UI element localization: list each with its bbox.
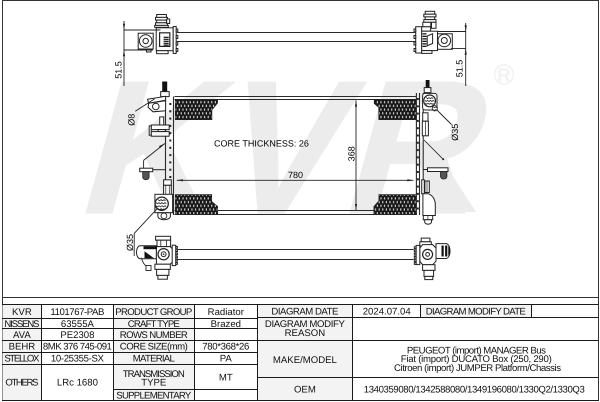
svg-text:PE2308: PE2308: [60, 330, 94, 341]
svg-text:REASON: REASON: [285, 328, 326, 339]
svg-text:MAKE/MODEL: MAKE/MODEL: [273, 355, 338, 366]
svg-text:KVR: KVR: [12, 307, 32, 318]
svg-text:51.5: 51.5: [114, 61, 124, 79]
svg-text:OTHERS: OTHERS: [5, 378, 38, 389]
svg-text:ROWS NUMBER: ROWS NUMBER: [120, 330, 188, 341]
svg-text:2024.07.04: 2024.07.04: [363, 307, 412, 318]
svg-text:SUPPLEMENTARY: SUPPLEMENTARY: [116, 390, 192, 401]
svg-text:8MK 376 745-091: 8MK 376 745-091: [43, 342, 112, 353]
svg-text:CORE THICKNESS: 26: CORE THICKNESS: 26: [214, 139, 309, 149]
svg-text:CRAFT TYPE: CRAFT TYPE: [128, 319, 180, 330]
svg-text:DIAGRAM MODIFY DATE: DIAGRAM MODIFY DATE: [426, 307, 526, 318]
svg-text:Brazed: Brazed: [211, 319, 241, 330]
svg-text:STELLOX: STELLOX: [4, 354, 40, 365]
svg-text:Ø35: Ø35: [125, 234, 135, 251]
svg-text:BEHR: BEHR: [9, 342, 36, 353]
svg-text:63555A: 63555A: [61, 319, 95, 330]
svg-text:NISSENS: NISSENS: [4, 319, 39, 330]
svg-text:368: 368: [347, 146, 357, 161]
svg-text:10-25355-SX: 10-25355-SX: [51, 354, 105, 365]
svg-text:MT: MT: [219, 372, 233, 383]
svg-text:PA: PA: [220, 354, 233, 365]
svg-text:1101767-PAB: 1101767-PAB: [50, 307, 104, 318]
svg-text:51.5: 51.5: [454, 60, 464, 78]
svg-text:AVA: AVA: [13, 330, 31, 341]
svg-text:Radiator: Radiator: [208, 307, 245, 318]
svg-text:780*368*26: 780*368*26: [202, 342, 249, 353]
svg-text:PRODUCT GROUP: PRODUCT GROUP: [115, 307, 192, 318]
svg-text:780: 780: [288, 170, 303, 180]
svg-text:LRc 1680: LRc 1680: [57, 378, 98, 389]
svg-text:1340359080/1342588080/13491960: 1340359080/1342588080/1349196080/1330Q2/…: [364, 385, 585, 396]
svg-text:Ø8: Ø8: [127, 114, 137, 126]
svg-text:TYPE: TYPE: [141, 378, 166, 389]
svg-text:DIAGRAM DATE: DIAGRAM DATE: [271, 307, 338, 318]
svg-text:MATERIAL: MATERIAL: [133, 354, 176, 365]
svg-text:CORE SIZE(mm): CORE SIZE(mm): [120, 342, 188, 353]
svg-text:Ø35: Ø35: [450, 124, 460, 141]
svg-text:OEM: OEM: [294, 385, 316, 396]
svg-text:Citroen (import) JUMPER Platfo: Citroen (import) JUMPER Platform/Chassis: [394, 363, 561, 374]
svg-text:R: R: [497, 66, 511, 87]
